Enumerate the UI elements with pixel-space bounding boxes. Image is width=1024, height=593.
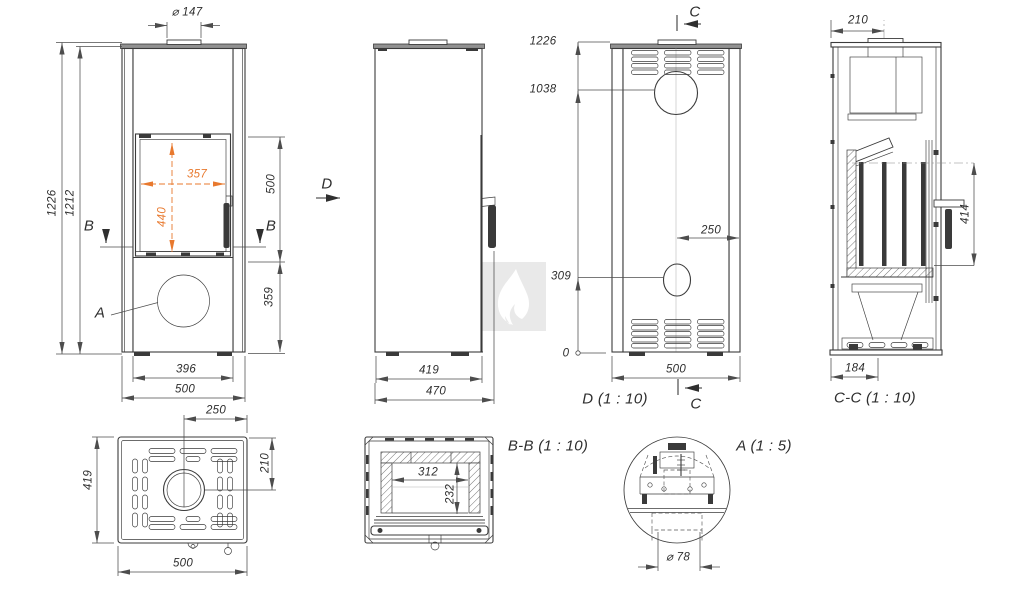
top-view-drawing (92, 415, 276, 576)
marker-section-c-top: C (689, 5, 700, 20)
foot (134, 353, 150, 357)
foot (451, 353, 469, 357)
base-plate (830, 350, 942, 355)
foot (386, 353, 399, 357)
door-handle (224, 203, 230, 248)
right-side-panel (233, 49, 245, 353)
dim-top-depth: 419 (83, 470, 95, 490)
dim-front-glass-height: 440 (157, 207, 169, 227)
stud (653, 456, 657, 474)
marker-section-b-left: B (84, 219, 94, 234)
dim-bb-firebox-depth: 232 (445, 484, 457, 504)
left-side-panel (122, 49, 133, 353)
flue-collar (658, 40, 696, 45)
detail-a-title: A (1 : 5) (736, 439, 792, 454)
marker-view-d: D (321, 177, 332, 192)
rear-view-title: D (1 : 10) (582, 392, 648, 407)
dim-front-height-total: 1226 (47, 190, 59, 217)
dim-rear-flue-height: 1038 (530, 84, 557, 96)
flue-collar (167, 40, 201, 45)
dim-front-base-height: 359 (264, 287, 276, 307)
dim-front-flue-diameter: ⌀ 147 (172, 7, 203, 19)
front-face (133, 49, 233, 353)
firebrick-back (381, 452, 480, 463)
dim-rear-inlet-height: 309 (551, 271, 571, 283)
pull-ring (225, 548, 232, 555)
drawing-canvas (0, 0, 1024, 593)
dim-rear-zero: 0 (563, 348, 570, 360)
dim-side-depth-total: 470 (426, 386, 446, 398)
flue-collar (868, 39, 903, 43)
dim-front-height-body: 1212 (65, 190, 77, 217)
dim-rear-width-total: 500 (666, 364, 686, 376)
dim-top-width: 500 (173, 558, 193, 570)
dim-front-width-inner: 396 (176, 364, 196, 376)
technical-drawing-sheet: ⌀ 147 1226 1212 357 440 500 359 396 500 … (0, 0, 1024, 593)
zero-datum (576, 351, 580, 355)
dim-cc-flue-center: 210 (848, 15, 868, 27)
firebrick-left (381, 463, 392, 513)
dim-front-glass-width: 357 (187, 169, 207, 181)
rear-view-drawing (576, 15, 742, 395)
section-bb-title: B-B (1 : 10) (508, 439, 588, 454)
firebrick-back (847, 150, 856, 277)
dim-top-flue-offset: 250 (206, 405, 226, 417)
flue-collar (409, 40, 447, 45)
baffle-plate (851, 138, 893, 162)
damper-duct (652, 513, 702, 530)
front-view-drawing (56, 22, 285, 402)
firebrick-right (469, 463, 480, 513)
dim-cc-handle-height: 414 (960, 204, 972, 224)
foot (217, 353, 232, 357)
dim-side-depth-body: 419 (419, 365, 439, 377)
section-bb-drawing (365, 437, 493, 550)
dim-top-flue-depth: 210 (260, 453, 272, 473)
dim-rear-flue-offset: 250 (701, 225, 721, 237)
dim-front-door-height: 500 (266, 174, 278, 194)
foot (707, 353, 723, 357)
side-body (375, 49, 482, 353)
firebrick-floor (847, 268, 933, 277)
side-view-drawing (316, 40, 496, 404)
dim-front-width-total: 500 (175, 384, 195, 396)
marker-section-c-bottom: C (690, 397, 701, 412)
foot (629, 353, 645, 357)
dim-bb-firebox-width: 312 (418, 467, 438, 479)
dim-rear-height-total: 1226 (530, 36, 557, 48)
marker-section-b-right: B (266, 219, 276, 234)
dim-detail-a-diameter: ⌀ 78 (666, 552, 690, 564)
dim-cc-base-width: 184 (845, 363, 865, 375)
damper-knob (188, 543, 198, 548)
section-cc-title: C-C (1 : 10) (834, 391, 916, 406)
door-handle (488, 205, 496, 248)
section-cc-drawing (830, 20, 974, 381)
door-handle (945, 209, 952, 249)
heat-exchanger (850, 57, 922, 113)
marker-detail-a: A (95, 306, 105, 321)
